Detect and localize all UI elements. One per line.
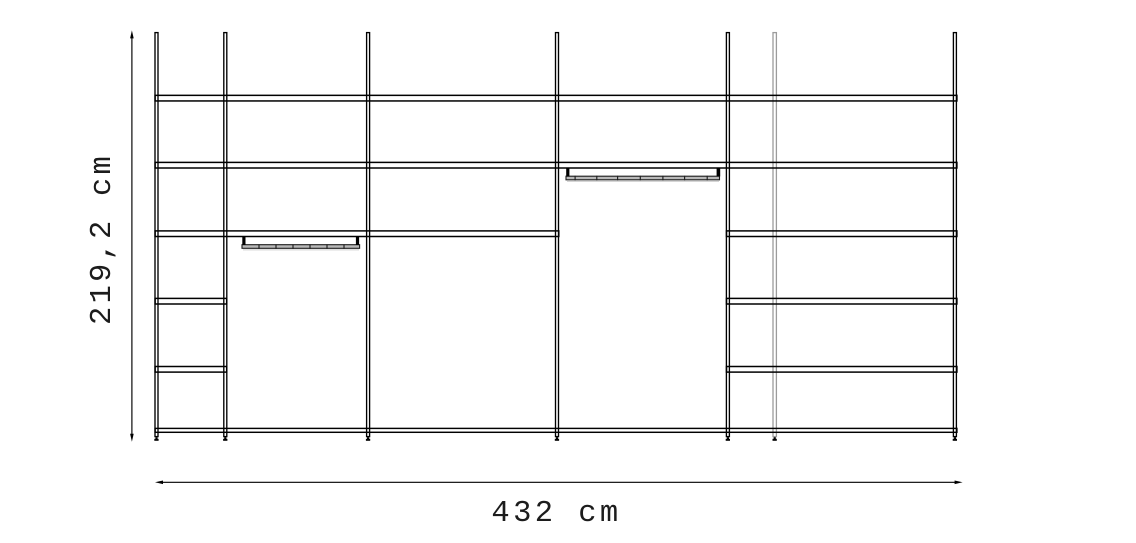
svg-text:219,2 cm: 219,2 cm xyxy=(86,153,120,325)
svg-text:432 cm: 432 cm xyxy=(491,497,621,531)
